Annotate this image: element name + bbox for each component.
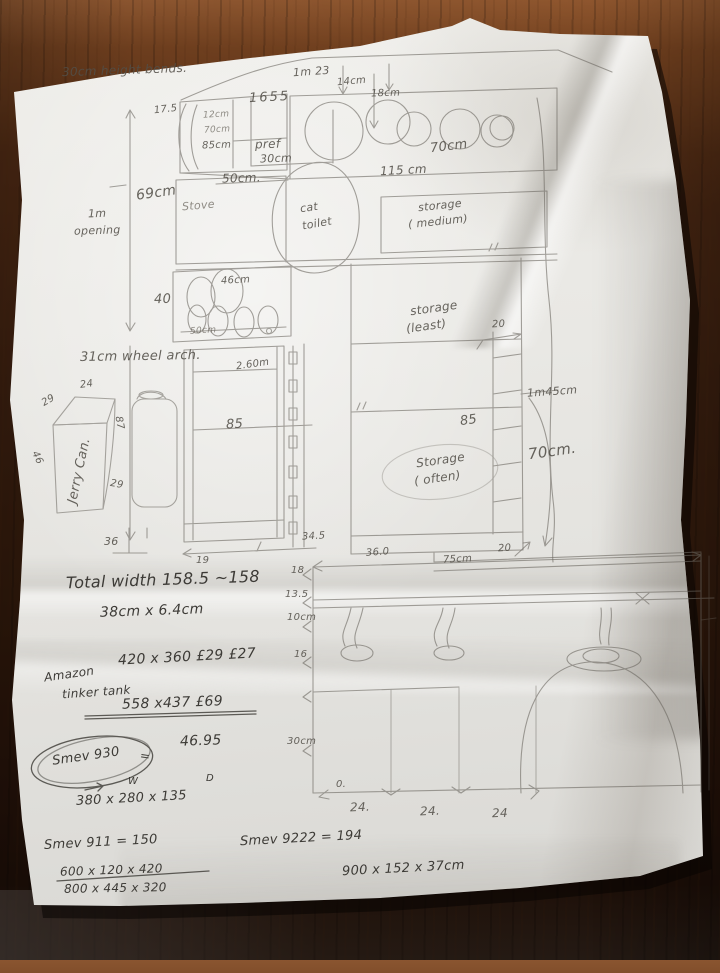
- label-pref-30cm: 30cm: [260, 152, 292, 164]
- label-24c: 24: [492, 807, 508, 820]
- label-cat: cat: [299, 201, 318, 214]
- label-18cm: 18cm: [371, 88, 401, 99]
- label-dims-800: 800 x 445 x 320: [64, 881, 167, 895]
- label-1m23: 1m 23: [293, 65, 330, 79]
- label-20-lower: 20: [498, 544, 512, 555]
- label-opening-1m: 1m: [88, 208, 107, 220]
- label-pref: pref: [255, 138, 281, 151]
- paper-sheet: [0, 0, 720, 960]
- label-24a: 24.: [350, 801, 370, 814]
- label-115cm: 115 cm: [380, 163, 427, 177]
- label-d: D: [206, 774, 214, 784]
- label-o-mark: 0.: [336, 780, 346, 790]
- label-1655: 1655: [249, 90, 291, 105]
- label-135: 13.5: [285, 590, 308, 600]
- label-70cm-stack: 70cm: [204, 125, 231, 135]
- label-10cm: 10cm: [287, 613, 316, 623]
- label-eq: =: [139, 749, 151, 762]
- label-18: 18: [291, 566, 304, 576]
- label-46cm: 46cm: [221, 275, 251, 287]
- label-85-mid: 85: [226, 418, 244, 432]
- label-16: 16: [294, 650, 307, 660]
- label-20-right: 20: [492, 320, 506, 331]
- label-50cm-small: 50cm: [190, 326, 217, 336]
- label-1m45cm: 1m45cm: [527, 384, 578, 398]
- label-dims-600: 600 x 120 x 420: [60, 862, 163, 878]
- label-w: W: [128, 777, 138, 787]
- label-19: 19: [196, 556, 209, 566]
- label-85-right: 85: [459, 413, 478, 428]
- label-75cm: 75cm: [443, 554, 473, 566]
- label-24b: 24.: [420, 805, 440, 818]
- label-50cm: 50cm.: [222, 171, 261, 184]
- label-30cm: 30cm: [287, 737, 316, 747]
- label-jerry-29b: 29: [109, 479, 124, 491]
- label-dims-558: 558 x437 £69: [122, 694, 223, 712]
- label-price-930: 46.95: [180, 733, 222, 748]
- label-85cm: 85cm: [202, 140, 232, 151]
- label-wheel-arch: 31cm wheel arch.: [80, 349, 201, 364]
- label-360: 36.0: [366, 547, 390, 559]
- label-40: 40: [154, 293, 172, 307]
- label-jerry-36: 36: [104, 536, 119, 547]
- label-opening: opening: [74, 224, 121, 237]
- label-size-38: 38cm x 6.4cm: [100, 602, 204, 620]
- label-jerry-24: 24: [79, 379, 94, 391]
- label-345: 34.5: [302, 531, 326, 542]
- label-jerry-87: 87: [113, 416, 125, 431]
- label-12cm: 12cm: [203, 110, 230, 120]
- label-stove: Stove: [182, 199, 216, 213]
- paper-fold-crease: [420, 8, 680, 348]
